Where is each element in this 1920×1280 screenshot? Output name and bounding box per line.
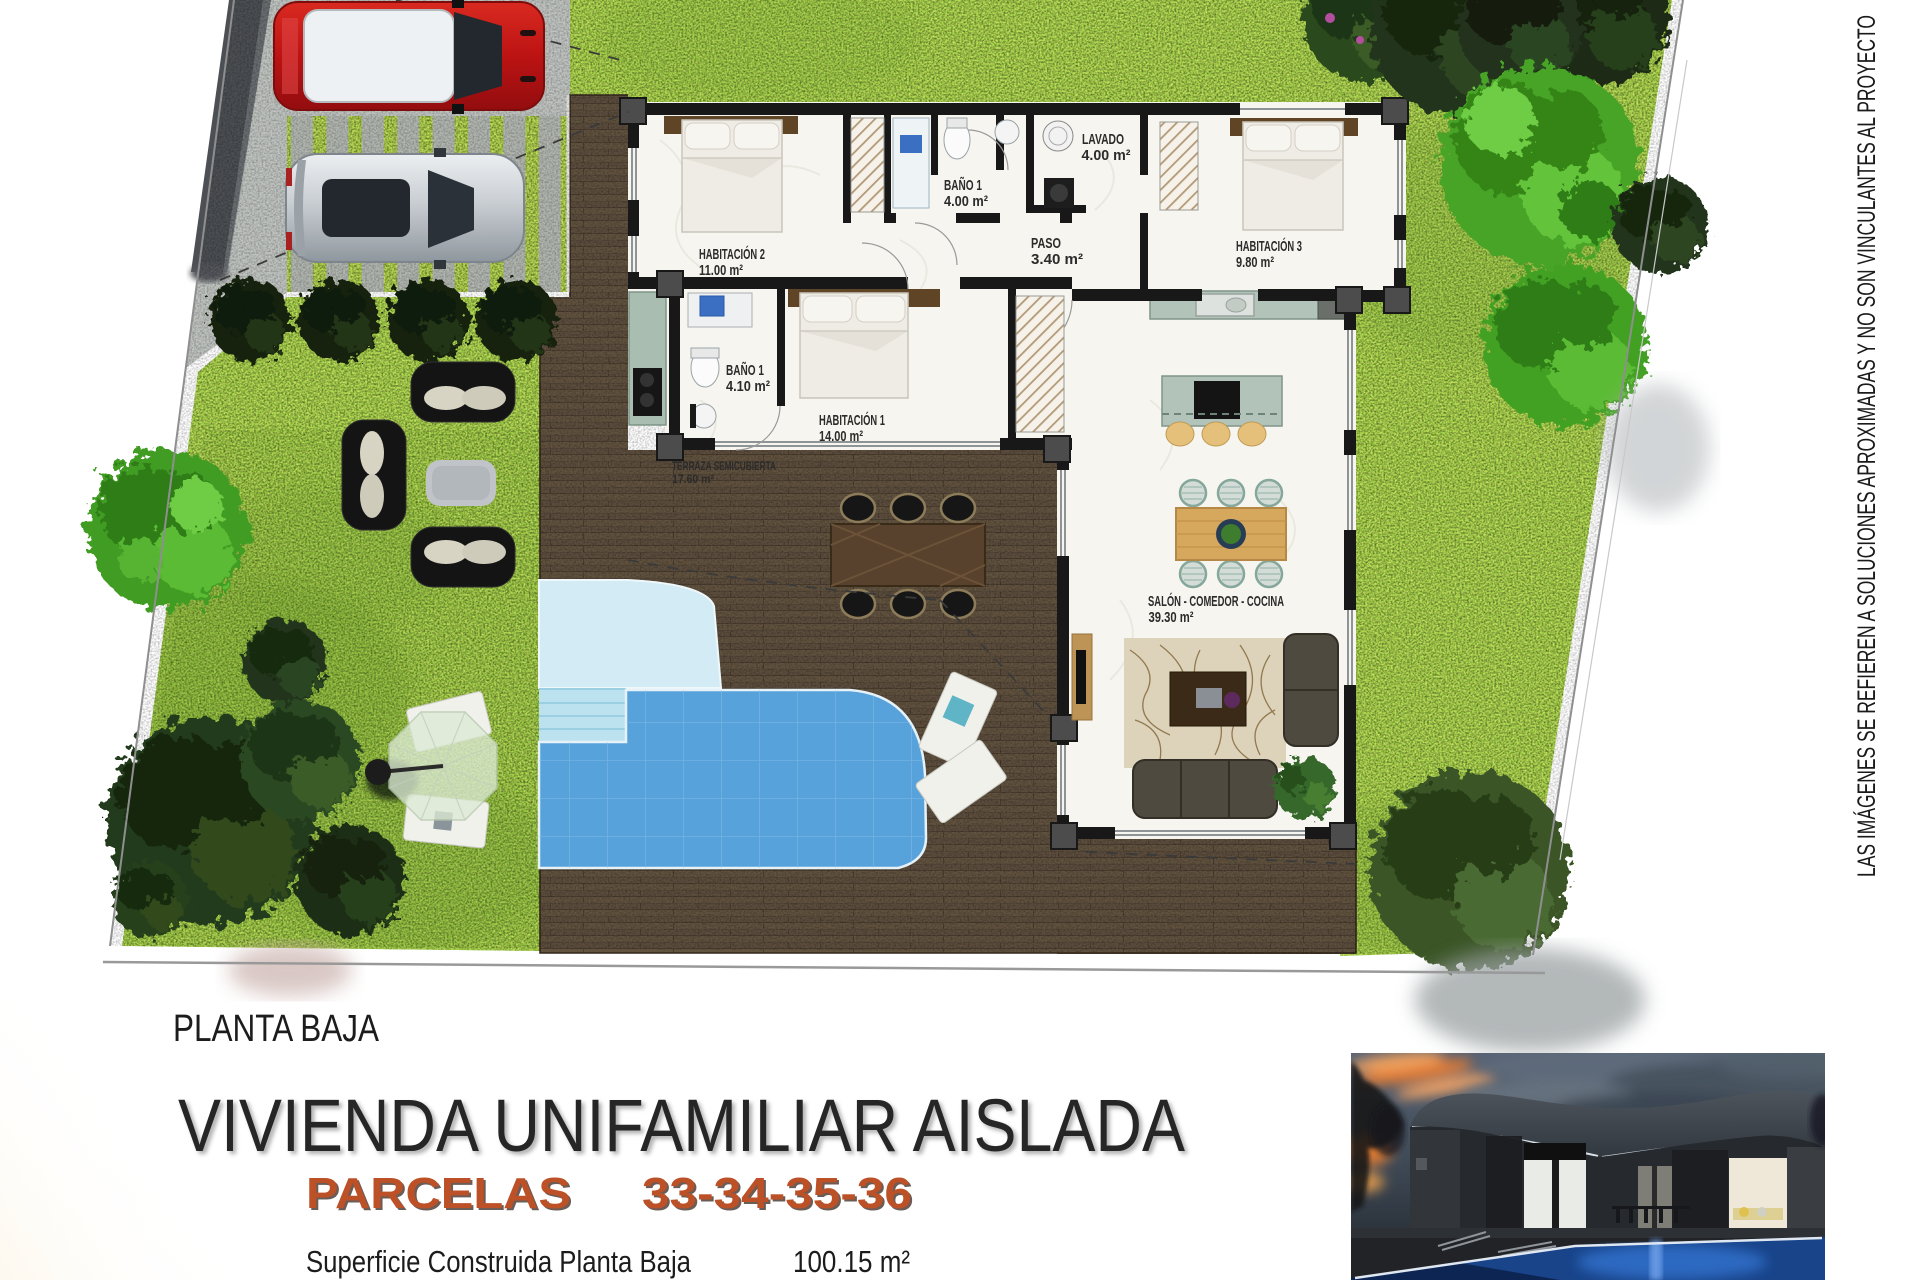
svg-text:LAS IMÁGENES SE REFIEREN A SOL: LAS IMÁGENES SE REFIEREN A SOLUCIONES AP… [1852,15,1881,877]
svg-text:LAVADO: LAVADO [1082,131,1124,148]
svg-text:PARCELAS: PARCELAS [306,1169,571,1218]
svg-text:TERRAZA SEMICUBIERTA: TERRAZA SEMICUBIERTA [672,459,776,473]
svg-text:BAÑO 1: BAÑO 1 [726,361,764,379]
svg-text:4.10 m²: 4.10 m² [726,378,770,395]
svg-text:Superficie Construida Planta B: Superficie Construida Planta Baja [306,1244,692,1279]
svg-text:HABITACIÓN 3: HABITACIÓN 3 [1236,237,1302,255]
svg-text:9.80 m²: 9.80 m² [1236,254,1274,271]
svg-text:VIVIENDA UNIFAMILIAR AISLADA: VIVIENDA UNIFAMILIAR AISLADA [178,1084,1186,1167]
svg-text:BAÑO 1: BAÑO 1 [944,176,982,194]
svg-text:100.15 m²: 100.15 m² [793,1244,910,1279]
svg-text:4.00 m²: 4.00 m² [944,193,988,210]
svg-text:4.00 m²: 4.00 m² [1082,147,1131,164]
svg-text:17.60 m²: 17.60 m² [672,472,714,486]
svg-text:HABITACIÓN 2: HABITACIÓN 2 [699,245,765,263]
svg-text:33-34-35-36: 33-34-35-36 [642,1169,912,1218]
svg-text:PLANTA BAJA: PLANTA BAJA [173,1008,380,1050]
svg-text:14.00 m²: 14.00 m² [819,428,863,445]
svg-text:SALÓN - COMEDOR - COCINA: SALÓN - COMEDOR - COCINA [1148,592,1284,610]
svg-text:HABITACIÓN 1: HABITACIÓN 1 [819,411,885,429]
svg-text:11.00 m²: 11.00 m² [699,262,743,279]
svg-text:PASO: PASO [1031,235,1061,252]
svg-text:39.30 m²: 39.30 m² [1149,609,1194,626]
svg-text:3.40 m²: 3.40 m² [1031,251,1083,268]
